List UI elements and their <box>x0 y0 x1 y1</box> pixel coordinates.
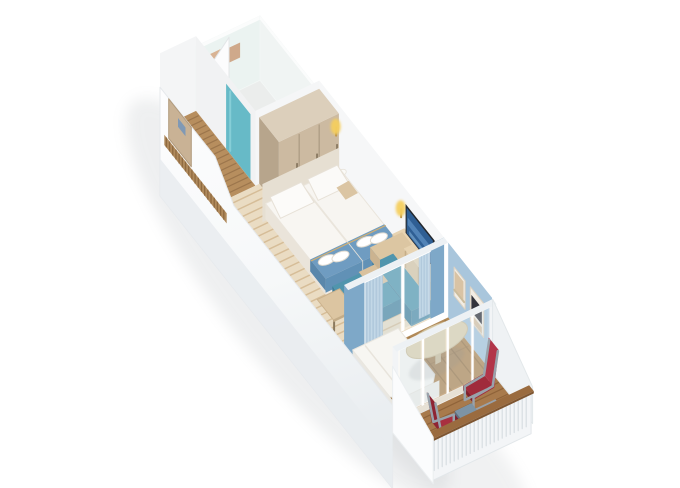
sconce-glow-2 <box>396 200 406 216</box>
balcony-door-post-1 <box>422 337 424 406</box>
balcony-door-post-3 <box>471 313 473 382</box>
balcony-door-glass-2 <box>424 327 446 404</box>
balcony-door-glass-3 <box>449 316 471 393</box>
partition-glass-right <box>404 251 430 329</box>
partition-door-post <box>401 263 404 332</box>
floorplan-canvas <box>0 0 680 488</box>
balcony-door-post-2 <box>447 325 449 394</box>
floorplan-render <box>0 0 680 488</box>
sconce-glow-1 <box>331 119 341 135</box>
floorplan <box>0 0 680 488</box>
